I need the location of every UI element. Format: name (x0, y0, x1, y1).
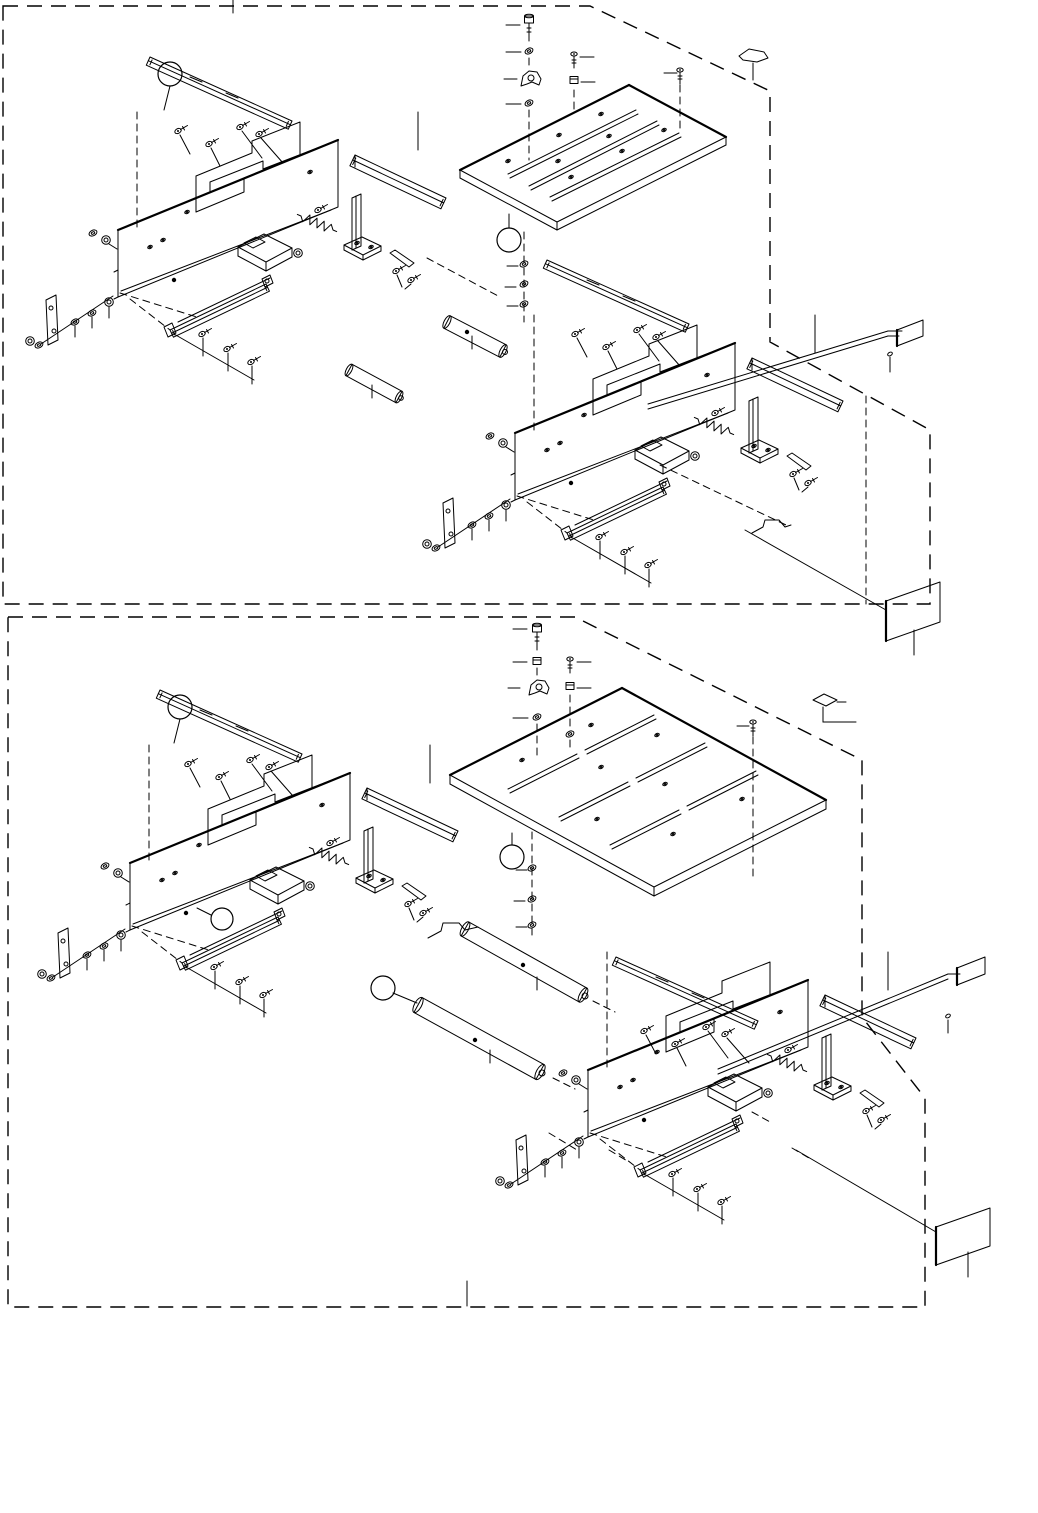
leader-line (356, 883, 375, 893)
nut-icon (26, 337, 35, 346)
hole-grommet (581, 413, 587, 418)
leader-line (639, 334, 659, 361)
screw-icon (236, 122, 250, 131)
part-outline (752, 520, 791, 533)
leader-line (867, 1115, 872, 1127)
washer-icon (34, 341, 44, 350)
upper-left-frame-frame-parts (26, 112, 446, 384)
nut-icon (691, 452, 700, 461)
part-circle (519, 1146, 523, 1150)
hole-grommet (824, 1081, 830, 1086)
part-outline (814, 1077, 851, 1095)
part-circle (52, 329, 56, 333)
leader-line (557, 145, 726, 230)
diagram-page (0, 0, 1038, 1513)
screw-icon (571, 329, 585, 338)
washer-icon (504, 1181, 514, 1190)
leader-line (278, 890, 304, 904)
panel-dashed-border (3, 6, 930, 604)
lower-assembly-panel (8, 617, 990, 1307)
hole-grommet (606, 134, 612, 139)
washer-icon (524, 47, 534, 56)
screw-icon (247, 357, 261, 366)
hole-grommet (838, 1085, 844, 1090)
leader-line (708, 1031, 728, 1058)
hole-grommet (159, 878, 165, 883)
leader-dashed-line (660, 465, 786, 525)
bolt-icon (525, 14, 534, 36)
screw-icon (259, 990, 273, 999)
leader-line (344, 250, 363, 260)
hole-grommet (588, 723, 594, 728)
part-outline (118, 140, 338, 297)
roller-part (441, 314, 509, 358)
part-outline (516, 1135, 528, 1185)
hole-grommet (354, 241, 360, 246)
nut-icon (499, 439, 508, 448)
washer-icon (431, 544, 441, 553)
hole-grommet (147, 245, 153, 250)
upper-assembly-panel (3, 0, 940, 655)
part-outline (860, 1090, 884, 1107)
part-outline (238, 234, 292, 262)
callout-balloon (497, 228, 521, 252)
callout-balloon (371, 976, 395, 1000)
roller-part (458, 920, 590, 1003)
screw-icon (595, 532, 609, 541)
rail-part (362, 788, 458, 842)
part-outline (741, 440, 778, 458)
nut-icon (572, 1076, 581, 1085)
spring-icon (297, 214, 336, 231)
screw-icon (602, 342, 616, 351)
thick-edge-line (450, 688, 622, 775)
leader-dashed-line (752, 1112, 772, 1123)
hole-grommet (557, 441, 563, 446)
hole-grommet (307, 170, 313, 175)
leader-line (636, 743, 705, 778)
hole-grommet (568, 175, 574, 180)
thick-edge-line (629, 85, 726, 137)
part-outline (957, 957, 985, 985)
leader-line (174, 334, 254, 380)
screw-icon (750, 720, 756, 736)
hole-grommet (661, 128, 667, 133)
rail-part (170, 284, 269, 337)
nut-icon (38, 970, 47, 979)
leader-line (450, 784, 654, 896)
part-outline (708, 1074, 762, 1102)
leader-line (438, 499, 510, 547)
leader-line (221, 781, 230, 799)
spring-icon (694, 417, 733, 434)
screw-icon (567, 657, 573, 673)
leader-line (271, 771, 293, 796)
leader-line (417, 917, 423, 922)
thick-edge-line (130, 773, 350, 863)
part-outline (450, 688, 826, 887)
part-outline (114, 270, 118, 299)
rail-part (350, 155, 446, 209)
leader-line (794, 478, 799, 490)
leader-line (238, 256, 266, 271)
part-outline (511, 473, 515, 502)
screw-icon (652, 332, 666, 341)
screw-icon (407, 275, 421, 284)
leader-line (186, 967, 266, 1013)
leader-line (663, 460, 689, 474)
leader-line (760, 454, 778, 463)
leader-line (121, 877, 129, 882)
leader-line (121, 210, 331, 291)
part-outline (584, 1110, 588, 1139)
upper-left-frame (26, 57, 446, 384)
leader-dashed-line (549, 1133, 577, 1150)
washer-icon (88, 229, 98, 238)
hole-grommet (366, 874, 372, 879)
leader-line (109, 244, 117, 249)
leader-line (644, 1174, 724, 1220)
part-ellipse (887, 351, 893, 356)
part-outline (897, 320, 923, 346)
screw-icon (644, 560, 658, 569)
leader-line (718, 974, 948, 1069)
washer-icon (532, 713, 542, 722)
leader-line (635, 459, 663, 474)
leader-line (197, 908, 211, 915)
leader-line (687, 771, 756, 806)
hole-grommet (662, 782, 668, 787)
screw-icon (255, 129, 269, 138)
washer-icon (100, 862, 110, 871)
leader-line (745, 530, 886, 610)
leader-line (654, 809, 826, 896)
rail-part (543, 260, 689, 332)
washer-icon (527, 921, 537, 930)
screw-head-dot (465, 330, 469, 334)
square-nut-icon (566, 683, 574, 690)
leader-line (133, 843, 343, 924)
thick-edge-line (622, 688, 826, 800)
leader-dashed-line (590, 1133, 670, 1158)
square-nut-icon (570, 77, 578, 84)
rail-part (612, 957, 758, 1029)
leader-line (708, 1096, 736, 1111)
lower-left-frame-frame-parts (38, 745, 458, 1017)
leader-line (638, 747, 707, 782)
leader-line (802, 487, 808, 492)
leader-line (833, 1091, 851, 1100)
rail-part (820, 995, 916, 1049)
leader-line (180, 135, 190, 154)
nut-icon (114, 869, 123, 878)
leader-dashed-line (142, 932, 182, 963)
leader-line (375, 884, 393, 893)
screw-icon (392, 266, 406, 275)
part-circle (49, 306, 53, 310)
screw-icon (677, 68, 683, 84)
leader-line (242, 131, 262, 158)
nut-icon (102, 236, 111, 245)
leader-dashed-line (527, 502, 567, 533)
bolt-icon (533, 623, 542, 645)
leader-dashed-line (130, 299, 170, 330)
leader-line (648, 331, 888, 404)
rail-part (747, 358, 843, 412)
screw-icon (215, 772, 229, 781)
leader-line (796, 1150, 936, 1232)
screw-icon (789, 469, 803, 478)
leader-line (250, 889, 278, 904)
screw-icon (717, 1197, 731, 1206)
leader-dashed-line (517, 496, 597, 521)
hole-grommet (670, 832, 676, 837)
screw-icon (862, 1106, 876, 1115)
leader-line (41, 296, 113, 344)
leader-line (689, 775, 758, 810)
part-outline (126, 903, 130, 932)
nut-icon (496, 1177, 505, 1186)
leader-dashed-line (609, 1150, 629, 1162)
part-outline (443, 498, 455, 548)
hole-grommet (654, 733, 660, 738)
leader-line (677, 1048, 686, 1066)
lower-assembly-panel-parts (411, 623, 990, 1306)
washer-icon (524, 99, 534, 108)
screw-icon (693, 1184, 707, 1193)
screw-head-dot (569, 481, 573, 485)
hole-grommet (594, 817, 600, 822)
hole-grommet (556, 133, 562, 138)
hole-grommet (319, 803, 325, 808)
leader-line (363, 251, 381, 260)
part-outline (390, 250, 414, 267)
lower-left-frame (38, 690, 458, 1017)
screw-icon (633, 325, 647, 334)
thick-edge-line (460, 85, 629, 170)
hole-grommet (196, 843, 202, 848)
leader-line (610, 810, 679, 845)
spring-icon (309, 847, 348, 864)
part-circle (449, 532, 453, 536)
screw-icon (877, 1115, 891, 1124)
screw-icon (671, 1039, 685, 1048)
part-outline (428, 923, 478, 938)
part-outline (936, 1208, 990, 1265)
part-outline (250, 867, 304, 895)
leader-line (658, 341, 680, 366)
hole-grommet (777, 1010, 783, 1015)
part-outline (58, 928, 70, 978)
leader-dashed-line (120, 293, 200, 318)
leader-line (585, 715, 654, 750)
part-outline (402, 883, 426, 900)
screw-icon (210, 962, 224, 971)
leader-line (409, 908, 414, 920)
hole-grommet (160, 238, 166, 243)
hole-grommet (555, 159, 561, 164)
part-circle (522, 1169, 526, 1173)
leader-line (211, 148, 220, 166)
upper-right-frame (423, 260, 843, 587)
hole-grommet (751, 444, 757, 449)
panel-dashed-border (8, 617, 925, 1307)
leader-line (612, 814, 681, 849)
screw-icon (174, 126, 188, 135)
screw-icon (184, 759, 198, 768)
upper-right-frame-frame-parts (423, 315, 843, 587)
leader-dashed-line (600, 1139, 640, 1170)
hole-grommet (380, 878, 386, 883)
leader-line (814, 1090, 833, 1100)
leader-line (266, 257, 292, 271)
part-outline (886, 582, 940, 641)
screw-icon (404, 899, 418, 908)
hole-grommet (544, 448, 550, 453)
leader-line (559, 782, 628, 817)
leader-line (164, 86, 170, 110)
hole-grommet (617, 1085, 623, 1090)
screw-icon (419, 908, 433, 917)
rail-part (567, 487, 666, 540)
leader-line (875, 1124, 881, 1129)
part-outline (787, 453, 811, 470)
hole-grommet (184, 210, 190, 215)
screw-head-dot (642, 1118, 646, 1122)
part-outline (739, 49, 768, 62)
leader-line (591, 1050, 801, 1131)
hole-grommet (505, 159, 511, 164)
leader-line (579, 1084, 587, 1089)
upper-left-frame-rail-parts (146, 57, 292, 166)
leader-line (506, 447, 514, 452)
leader-line (53, 929, 125, 977)
leader-line (571, 537, 651, 583)
leader-dashed-line (132, 926, 212, 951)
part-circle (61, 939, 65, 943)
screw-icon (804, 478, 818, 487)
leader-line (174, 719, 180, 743)
washer-icon (565, 730, 575, 739)
screw-head-dot (172, 278, 176, 282)
screw-icon (640, 1026, 654, 1035)
hole-grommet (704, 373, 710, 378)
leader-line (190, 768, 200, 787)
nut-icon (764, 1089, 773, 1098)
callout-balloon (211, 908, 233, 930)
leader-line (261, 138, 283, 163)
roller-part (411, 996, 547, 1081)
screw-icon (198, 329, 212, 338)
screw-head-dot (184, 911, 188, 915)
leader-dashed-line (427, 258, 500, 297)
upper-right-frame-rail-parts (543, 260, 689, 369)
screw-icon (246, 755, 260, 764)
part-circle (446, 509, 450, 513)
thick-edge-line (118, 140, 338, 230)
exploded-parts-diagram (0, 0, 1038, 1513)
leader-line (511, 1136, 583, 1184)
leader-line (405, 284, 411, 289)
screw-icon (223, 344, 237, 353)
screw-icon (235, 977, 249, 986)
part-outline (515, 343, 735, 500)
hole-grommet (172, 871, 178, 876)
part-ellipse (945, 1013, 951, 1018)
hole-grommet (630, 1078, 636, 1083)
screw-icon (205, 139, 219, 148)
leader-line (397, 275, 402, 287)
part-outline (344, 237, 381, 255)
leader-dashed-line (593, 1001, 615, 1012)
leader-line (561, 786, 630, 821)
leader-line (741, 453, 760, 463)
lower-right-frame-rail-parts (612, 957, 758, 1066)
leader-line (608, 351, 617, 369)
rail-part (640, 1124, 739, 1177)
hole-grommet (598, 112, 604, 117)
lower-left-frame-rail-parts (156, 690, 302, 799)
screw-icon (571, 52, 577, 68)
screw-head-dot (521, 963, 525, 967)
hole-grommet (739, 797, 745, 802)
part-outline (130, 773, 350, 930)
roller-part (344, 363, 405, 404)
washer-icon (519, 260, 529, 269)
nut-icon (294, 249, 303, 258)
screw-head-dot (473, 1038, 477, 1042)
nut-icon (306, 882, 315, 891)
part-circle (64, 962, 68, 966)
clip-icon (529, 680, 549, 695)
screw-icon (721, 1029, 735, 1038)
part-outline (813, 694, 837, 706)
upper-assembly-panel-parts (233, 0, 940, 655)
screw-icon (620, 547, 634, 556)
leader-line (727, 1038, 749, 1063)
washer-icon (558, 1069, 568, 1078)
part-outline (356, 870, 393, 888)
leader-line (508, 754, 577, 789)
hole-grommet (519, 758, 525, 763)
leader-line (736, 1097, 762, 1111)
leader-line (393, 993, 417, 1003)
washer-icon (485, 432, 495, 441)
leader-line (577, 338, 587, 357)
hole-grommet (619, 149, 625, 154)
leader-line (587, 719, 656, 754)
square-nut-icon (533, 658, 541, 665)
spring-icon (767, 1054, 806, 1071)
nut-icon (423, 540, 432, 549)
screw-icon (668, 1169, 682, 1178)
part-outline (46, 295, 58, 345)
part-outline (635, 437, 689, 465)
hole-grommet (765, 448, 771, 453)
callout-balloon (500, 845, 524, 869)
leader-line (648, 336, 888, 409)
washer-icon (46, 974, 56, 983)
clip-icon (521, 71, 541, 86)
hole-grommet (368, 245, 374, 250)
hole-grommet (598, 765, 604, 770)
leader-line (510, 758, 579, 793)
